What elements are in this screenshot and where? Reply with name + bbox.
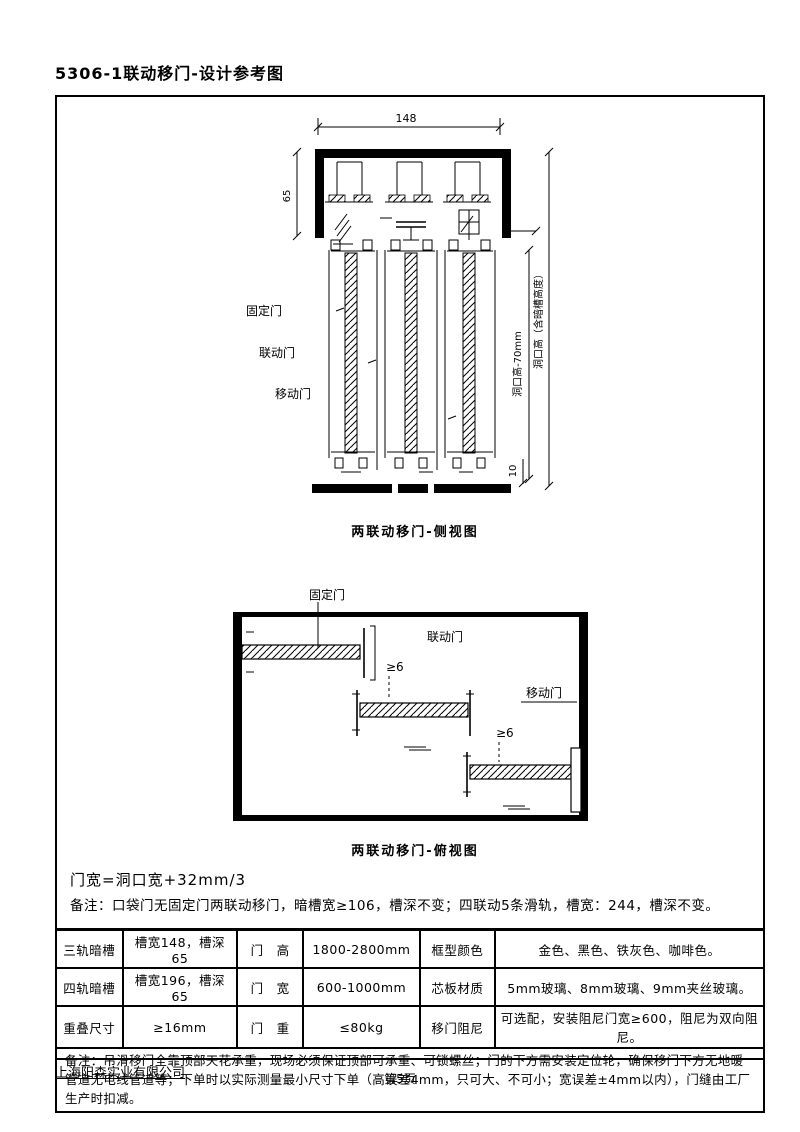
plan-view-caption: 两联动移门-俯视图 <box>295 840 535 859</box>
cell-damper-value: 可选配，安装阻尼门宽≥600，阻尼为双向阻尼。 <box>495 1006 764 1048</box>
door-panel-moving <box>445 240 495 472</box>
cell-door-weight-value: ≤80kg <box>303 1006 420 1048</box>
dim-opening-height-total: 洞口高（含暗槽高度） <box>532 148 553 490</box>
label-linked-door: 联动门 <box>259 345 295 360</box>
plan-linked-door <box>352 690 474 736</box>
cell-overlap-label: 重叠尺寸 <box>56 1006 123 1048</box>
dim-148: 148 <box>314 112 504 135</box>
door-width-formula: 门宽=洞口宽+32mm/3 <box>70 869 246 890</box>
cell-damper-label: 移门阻尼 <box>420 1006 495 1048</box>
dim-65: 65 <box>282 148 301 240</box>
cell-core-material-label: 芯板材质 <box>420 968 495 1006</box>
dim-65-label: 65 <box>282 190 293 203</box>
dim-opening-height-total-label: 洞口高（含暗槽高度） <box>532 269 545 369</box>
label-fixed-door: 固定门 <box>246 303 282 318</box>
footer-page-number: 第5页 <box>0 1070 800 1087</box>
cell-track3-value: 槽宽148，槽深65 <box>123 930 238 969</box>
plan-gap-2-label: ≥6 <box>496 726 514 740</box>
side-view-caption: 两联动移门-侧视图 <box>295 521 535 540</box>
cell-track4-value: 槽宽196，槽深65 <box>123 968 238 1006</box>
door-panel-fixed <box>329 240 377 472</box>
table-row: 三轨暗槽 槽宽148，槽深65 门 高 1800-2800mm 框型颜色 金色、… <box>56 930 764 969</box>
roller-hanger-2 <box>380 162 433 240</box>
cell-door-width-value: 600-1000mm <box>303 968 420 1006</box>
door-panel-linked <box>385 240 437 472</box>
plan-fixed-door <box>242 626 375 680</box>
plan-label-moving-door-group: 移动门 <box>521 685 577 702</box>
cell-frame-color-label: 框型颜色 <box>420 930 495 969</box>
pocket-door-remark: 备注：口袋门无固定门两联动移门，暗槽宽≥106，槽深不变；四联动5条滑轨，槽宽：… <box>70 894 719 914</box>
plan-gap-1-label: ≥6 <box>386 660 404 674</box>
plan-moving-door <box>463 748 581 812</box>
table-row: 重叠尺寸 ≥16mm 门 重 ≤80kg 移门阻尼 可选配，安装阻尼门宽≥600… <box>56 1006 764 1048</box>
cell-door-height-label: 门 高 <box>237 930 303 969</box>
table-row: 四轨暗槽 槽宽196，槽深65 门 宽 600-1000mm 芯板材质 5mm玻… <box>56 968 764 1006</box>
cell-core-material-value: 5mm玻璃、8mm玻璃、9mm夹丝玻璃。 <box>495 968 764 1006</box>
plan-label-fixed-door: 固定门 <box>309 587 345 602</box>
plan-label-moving-door: 移动门 <box>526 685 562 700</box>
dim-10-label: 10 <box>508 465 519 478</box>
cell-door-height-value: 1800-2800mm <box>303 930 420 969</box>
cell-overlap-value: ≥16mm <box>123 1006 238 1048</box>
cell-track3-label: 三轨暗槽 <box>56 930 123 969</box>
label-moving-door: 移动门 <box>275 386 311 401</box>
side-view-drawing: 148 65 <box>240 105 570 545</box>
roller-hanger-1 <box>325 162 373 244</box>
plan-label-linked-door: 联动门 <box>427 629 463 644</box>
dim-opening-height-minus70: 洞口高-70mm <box>511 246 533 483</box>
cell-track4-label: 四轨暗槽 <box>56 968 123 1006</box>
cell-frame-color-value: 金色、黑色、铁灰色、咖啡色。 <box>495 930 764 969</box>
cell-door-width-label: 门 宽 <box>237 968 303 1006</box>
document-page: 5306-1联动移门-设计参考图 148 <box>0 0 800 1132</box>
dim-10: 10 <box>508 459 527 487</box>
cell-door-weight-label: 门 重 <box>237 1006 303 1048</box>
floor-bar <box>312 484 511 493</box>
plan-gap-1: ≥6 <box>386 660 404 700</box>
plan-gap-2: ≥6 <box>496 726 514 762</box>
roller-hanger-3 <box>443 162 491 240</box>
dim-opening-height-minus70-label: 洞口高-70mm <box>511 331 524 397</box>
dim-148-label: 148 <box>396 112 417 125</box>
plan-view-drawing: 固定门 联动门 ≥6 <box>225 583 597 833</box>
page-title: 5306-1联动移门-设计参考图 <box>55 60 284 84</box>
